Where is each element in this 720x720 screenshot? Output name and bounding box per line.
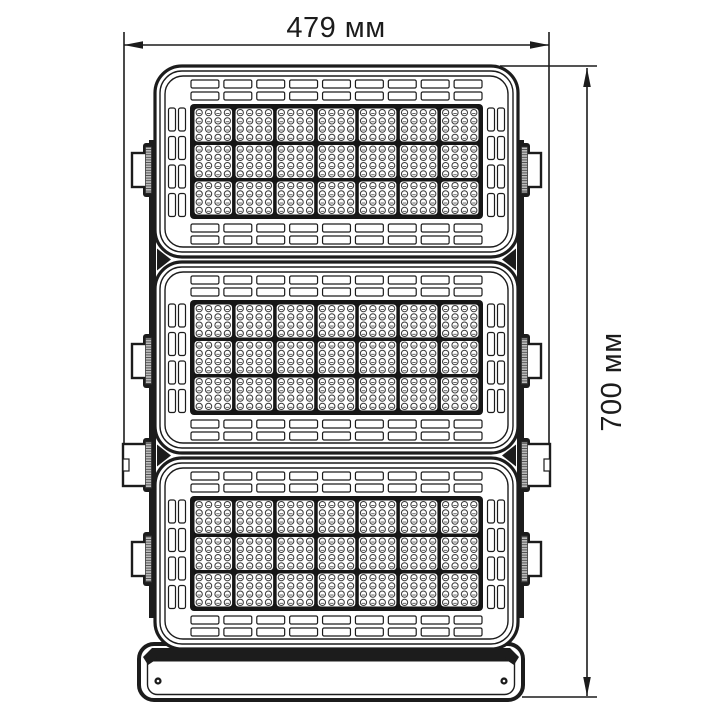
vent-slat	[290, 276, 318, 284]
led	[224, 163, 230, 169]
led	[411, 306, 417, 312]
led	[329, 350, 335, 356]
led	[247, 191, 253, 197]
led	[461, 367, 467, 373]
led	[329, 306, 335, 312]
led	[247, 342, 253, 348]
led	[205, 118, 211, 124]
led	[443, 599, 449, 605]
led	[196, 207, 202, 213]
led	[347, 330, 353, 336]
led	[329, 163, 335, 169]
led	[319, 110, 325, 116]
led	[288, 207, 294, 213]
led	[215, 330, 221, 336]
led	[411, 395, 417, 401]
led	[319, 599, 325, 605]
led	[420, 126, 426, 132]
led	[205, 191, 211, 197]
led	[411, 350, 417, 356]
led	[338, 538, 344, 544]
led	[215, 555, 221, 561]
led	[265, 518, 271, 524]
led	[461, 146, 467, 152]
vent-slat	[224, 288, 252, 296]
led	[471, 330, 477, 336]
led	[401, 546, 407, 552]
led	[205, 583, 211, 589]
led	[338, 154, 344, 160]
led	[411, 546, 417, 552]
led	[237, 395, 243, 401]
vent-slat	[454, 236, 482, 244]
led	[205, 387, 211, 393]
led	[329, 403, 335, 409]
led	[319, 591, 325, 597]
led	[379, 314, 385, 320]
led	[389, 322, 395, 328]
led	[288, 599, 294, 605]
led	[306, 118, 312, 124]
led	[379, 387, 385, 393]
led	[224, 563, 230, 569]
led	[443, 154, 449, 160]
led	[297, 526, 303, 532]
vent-slat	[290, 484, 318, 492]
vent-slat	[191, 92, 219, 100]
led	[196, 599, 202, 605]
led	[278, 583, 284, 589]
led	[338, 359, 344, 365]
led	[215, 599, 221, 605]
led	[288, 134, 294, 140]
led	[196, 387, 202, 393]
led	[288, 555, 294, 561]
led	[319, 575, 325, 581]
vent-slat	[257, 432, 285, 440]
led	[471, 538, 477, 544]
led	[297, 546, 303, 552]
led	[347, 359, 353, 365]
led	[411, 163, 417, 169]
vent-slat	[290, 80, 318, 88]
vent-slat	[179, 165, 186, 188]
led	[278, 387, 284, 393]
led	[205, 599, 211, 605]
led	[338, 314, 344, 320]
vent-slat	[488, 108, 495, 131]
led	[443, 306, 449, 312]
led	[411, 510, 417, 516]
led	[215, 110, 221, 116]
led	[297, 126, 303, 132]
led	[389, 359, 395, 365]
led	[256, 359, 262, 365]
led	[265, 403, 271, 409]
led	[215, 403, 221, 409]
led	[247, 555, 253, 561]
led	[256, 510, 262, 516]
led	[379, 306, 385, 312]
led	[329, 154, 335, 160]
led	[370, 538, 376, 544]
led	[430, 583, 436, 589]
led	[360, 395, 366, 401]
led	[329, 510, 335, 516]
led	[370, 134, 376, 140]
led	[319, 546, 325, 552]
vent-slat	[169, 108, 176, 131]
led	[370, 575, 376, 581]
led	[297, 555, 303, 561]
led	[471, 555, 477, 561]
led	[247, 171, 253, 177]
led	[379, 342, 385, 348]
vent-slat	[488, 586, 495, 609]
led	[347, 599, 353, 605]
led	[401, 563, 407, 569]
led	[237, 154, 243, 160]
led	[265, 207, 271, 213]
led	[306, 591, 312, 597]
led	[411, 207, 417, 213]
led	[452, 583, 458, 589]
led	[461, 306, 467, 312]
led	[370, 126, 376, 132]
led	[224, 359, 230, 365]
led	[370, 342, 376, 348]
led	[360, 526, 366, 532]
vent-slat	[421, 224, 449, 232]
vent-slat	[388, 420, 416, 428]
led	[452, 199, 458, 205]
led	[319, 146, 325, 152]
led	[452, 599, 458, 605]
led	[338, 350, 344, 356]
hinge-bracket	[517, 334, 541, 388]
led	[306, 518, 312, 524]
vent-slat	[257, 80, 285, 88]
vent-slat	[498, 361, 505, 384]
led	[347, 379, 353, 385]
vent-slat	[355, 92, 383, 100]
led	[338, 134, 344, 140]
led	[452, 314, 458, 320]
vent-slat	[323, 484, 351, 492]
led	[379, 591, 385, 597]
led	[347, 518, 353, 524]
vent-slat	[224, 236, 252, 244]
led	[461, 510, 467, 516]
led	[452, 395, 458, 401]
led	[319, 526, 325, 532]
led	[379, 359, 385, 365]
vent-slat	[191, 472, 219, 480]
led	[329, 359, 335, 365]
led	[265, 379, 271, 385]
led	[430, 134, 436, 140]
led	[360, 134, 366, 140]
led	[452, 379, 458, 385]
led	[278, 154, 284, 160]
led	[319, 538, 325, 544]
led	[379, 563, 385, 569]
led	[237, 546, 243, 552]
led	[420, 134, 426, 140]
led	[265, 555, 271, 561]
led	[389, 563, 395, 569]
led	[196, 154, 202, 160]
led	[288, 314, 294, 320]
led	[237, 146, 243, 152]
led	[360, 183, 366, 189]
led	[224, 526, 230, 532]
led	[215, 518, 221, 524]
led	[411, 118, 417, 124]
led	[224, 599, 230, 605]
led	[452, 563, 458, 569]
vent-slat	[179, 137, 186, 160]
led	[205, 126, 211, 132]
led	[411, 591, 417, 597]
led	[237, 126, 243, 132]
led	[389, 342, 395, 348]
led	[247, 387, 253, 393]
vent-slat	[169, 194, 176, 217]
led	[224, 314, 230, 320]
led	[389, 163, 395, 169]
led	[338, 502, 344, 508]
led	[224, 387, 230, 393]
led	[347, 342, 353, 348]
led	[461, 350, 467, 356]
led	[443, 591, 449, 597]
led	[420, 379, 426, 385]
led	[205, 555, 211, 561]
led	[265, 502, 271, 508]
vent-slat	[388, 92, 416, 100]
led	[430, 306, 436, 312]
led	[389, 306, 395, 312]
led	[452, 207, 458, 213]
led	[370, 518, 376, 524]
led	[389, 134, 395, 140]
vent-slat	[191, 628, 219, 636]
led	[411, 379, 417, 385]
led	[420, 575, 426, 581]
led	[215, 563, 221, 569]
led	[306, 526, 312, 532]
led	[411, 330, 417, 336]
led	[205, 154, 211, 160]
led	[420, 118, 426, 124]
led	[224, 126, 230, 132]
led	[347, 563, 353, 569]
led	[256, 183, 262, 189]
led	[461, 314, 467, 320]
led	[278, 563, 284, 569]
led	[347, 583, 353, 589]
vent-slat	[488, 500, 495, 523]
led	[389, 395, 395, 401]
led	[360, 146, 366, 152]
led	[278, 110, 284, 116]
led	[430, 518, 436, 524]
led	[389, 367, 395, 373]
vent-slat	[224, 276, 252, 284]
led	[319, 555, 325, 561]
led	[288, 583, 294, 589]
led	[205, 163, 211, 169]
led	[306, 330, 312, 336]
led	[411, 387, 417, 393]
led	[347, 118, 353, 124]
led	[306, 502, 312, 508]
led	[430, 154, 436, 160]
led	[247, 526, 253, 532]
led	[347, 502, 353, 508]
led	[471, 118, 477, 124]
led	[237, 359, 243, 365]
led	[411, 563, 417, 569]
led	[389, 379, 395, 385]
led	[379, 538, 385, 544]
led	[237, 367, 243, 373]
led	[461, 526, 467, 532]
led	[196, 518, 202, 524]
led	[370, 359, 376, 365]
led	[224, 134, 230, 140]
led	[265, 110, 271, 116]
led	[471, 154, 477, 160]
led	[237, 191, 243, 197]
led	[430, 591, 436, 597]
vent-slat	[323, 276, 351, 284]
led	[430, 575, 436, 581]
led	[196, 183, 202, 189]
led	[297, 367, 303, 373]
led	[347, 183, 353, 189]
led	[401, 134, 407, 140]
vent-slat	[498, 500, 505, 523]
mounting-yoke	[139, 644, 523, 700]
led	[452, 502, 458, 508]
led	[265, 387, 271, 393]
led	[297, 575, 303, 581]
vent-slat	[388, 484, 416, 492]
led	[411, 134, 417, 140]
led	[420, 395, 426, 401]
led	[420, 591, 426, 597]
led	[247, 546, 253, 552]
led	[389, 191, 395, 197]
led	[265, 583, 271, 589]
led	[452, 387, 458, 393]
led	[288, 502, 294, 508]
led	[347, 306, 353, 312]
led	[338, 110, 344, 116]
vent-slat	[224, 472, 252, 480]
led	[329, 502, 335, 508]
led	[278, 306, 284, 312]
led	[288, 538, 294, 544]
vent-slat	[498, 304, 505, 327]
vent-slat	[169, 557, 176, 580]
led	[256, 575, 262, 581]
led	[338, 563, 344, 569]
led	[370, 599, 376, 605]
led-module-2	[155, 262, 518, 453]
led	[306, 146, 312, 152]
led	[401, 199, 407, 205]
led	[471, 322, 477, 328]
led	[288, 146, 294, 152]
led	[360, 359, 366, 365]
vent-slat	[421, 432, 449, 440]
led	[443, 199, 449, 205]
led	[224, 583, 230, 589]
led	[224, 403, 230, 409]
led	[196, 583, 202, 589]
led	[297, 563, 303, 569]
led	[247, 350, 253, 356]
led	[347, 191, 353, 197]
led	[319, 118, 325, 124]
led	[256, 563, 262, 569]
led	[319, 379, 325, 385]
led	[319, 306, 325, 312]
led	[215, 502, 221, 508]
led	[288, 518, 294, 524]
led	[461, 403, 467, 409]
led	[256, 154, 262, 160]
led	[319, 395, 325, 401]
led	[461, 563, 467, 569]
led	[389, 403, 395, 409]
led	[379, 599, 385, 605]
led	[256, 322, 262, 328]
vent-slat	[290, 288, 318, 296]
vent-slat	[179, 500, 186, 523]
vent-slat	[169, 165, 176, 188]
vent-slat	[488, 194, 495, 217]
led	[224, 367, 230, 373]
vent-slat	[498, 529, 505, 552]
led	[224, 555, 230, 561]
led	[237, 599, 243, 605]
led	[329, 538, 335, 544]
led	[452, 510, 458, 516]
led	[256, 306, 262, 312]
led	[389, 199, 395, 205]
drawing-art	[123, 32, 597, 700]
led	[196, 538, 202, 544]
led	[288, 510, 294, 516]
led	[288, 563, 294, 569]
vent-slat	[179, 586, 186, 609]
vent-slat	[498, 557, 505, 580]
led	[237, 518, 243, 524]
led	[196, 191, 202, 197]
led	[215, 134, 221, 140]
led	[443, 510, 449, 516]
led	[329, 134, 335, 140]
led	[347, 538, 353, 544]
led	[196, 330, 202, 336]
led	[420, 171, 426, 177]
led	[461, 154, 467, 160]
led	[360, 314, 366, 320]
